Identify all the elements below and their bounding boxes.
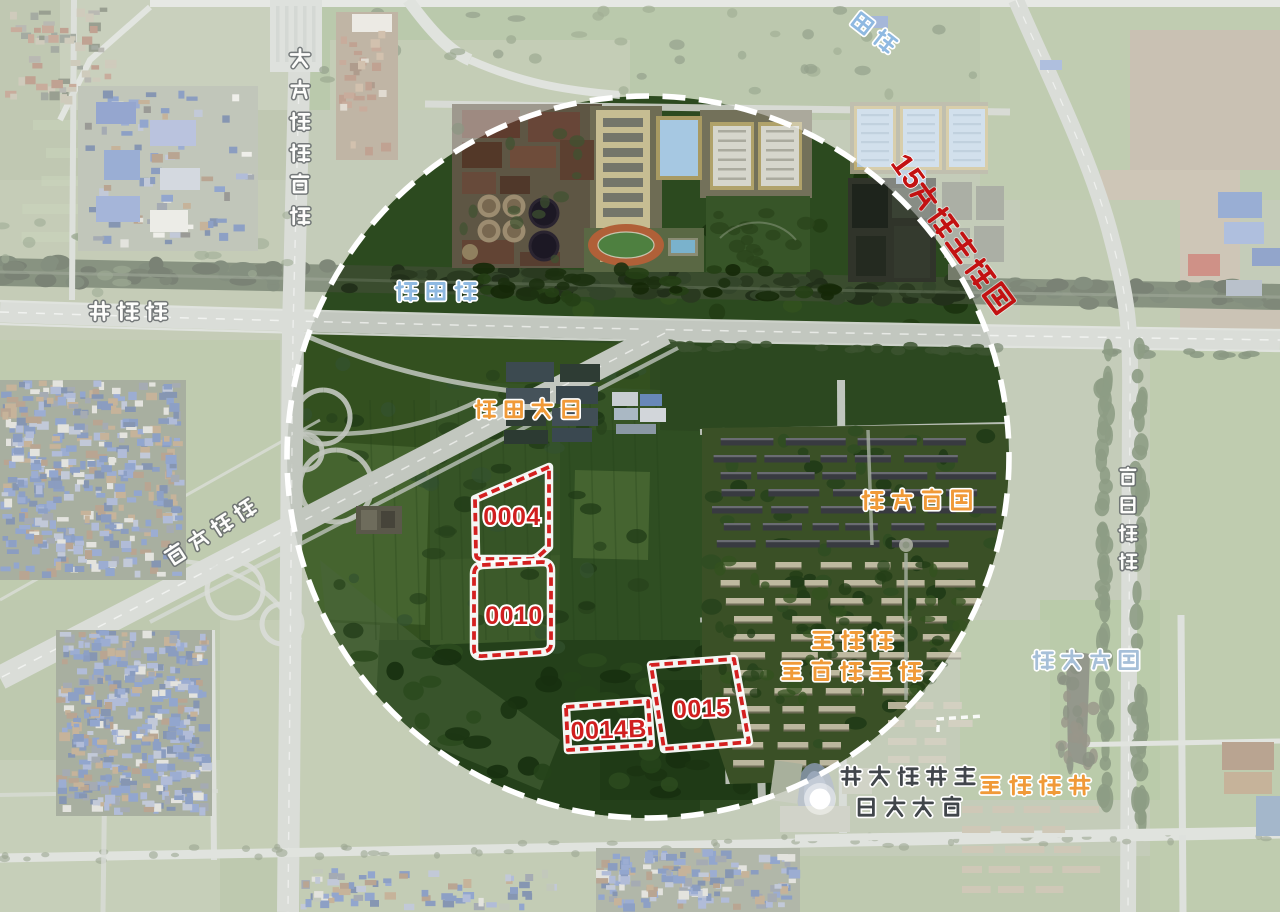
svg-text:0015: 0015 xyxy=(672,694,731,724)
svg-text:0010: 0010 xyxy=(485,602,543,630)
svg-text:0004: 0004 xyxy=(483,503,541,531)
svg-text:0014B: 0014B xyxy=(570,715,647,746)
